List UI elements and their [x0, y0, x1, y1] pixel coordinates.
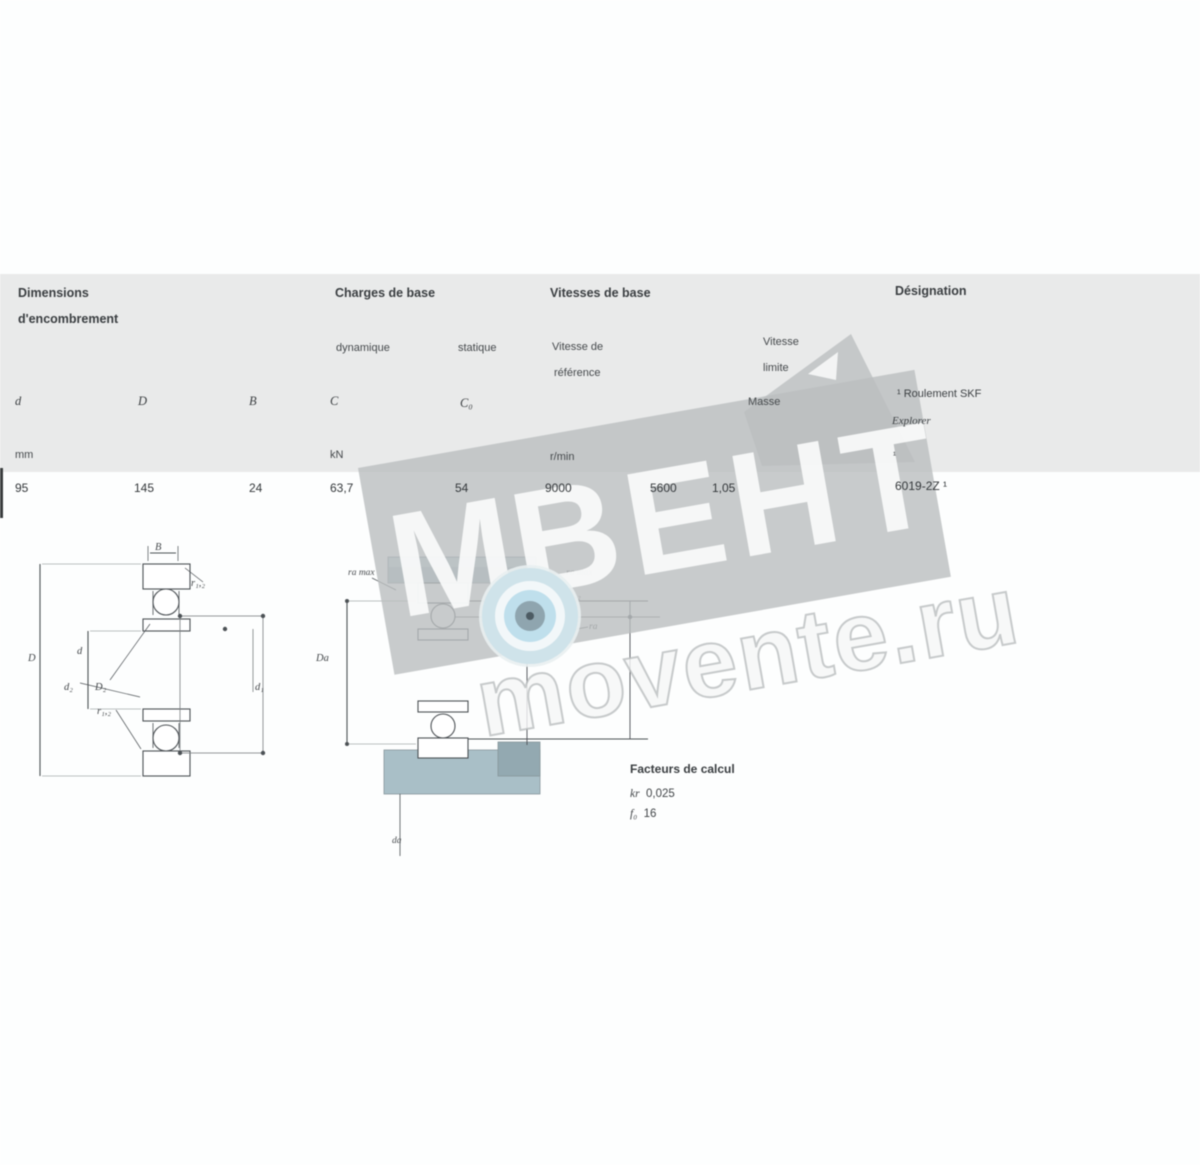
col-dimensions-title-line2: d'encombrement: [18, 312, 118, 326]
subheader-dynamic: dynamique: [336, 342, 390, 354]
value-static-load: 54: [455, 481, 468, 495]
unit-kN: kN: [330, 449, 343, 461]
col-dimensions-title-line1: Dimensions: [18, 286, 89, 300]
value-mass: 1,05: [712, 481, 735, 495]
watermark-logo-icon: [482, 568, 578, 664]
calc-factor-kr: kr 0,025: [630, 788, 675, 800]
calc-f0-value: 16: [644, 808, 657, 820]
calc-factor-f0: f₀ 16: [630, 808, 656, 820]
subheader-ref-speed-line2: référence: [554, 367, 600, 379]
symbol-bore-d: d: [15, 394, 21, 409]
footnote-mark: ¹: [893, 450, 896, 460]
catalog-page: Dimensions d'encombrement Charges de bas…: [0, 0, 1200, 1165]
value-width: 24: [249, 481, 262, 495]
unit-mm: mm: [15, 449, 33, 461]
symbol-dynamic-C: C: [330, 394, 338, 409]
subheader-static: statique: [458, 342, 497, 354]
calc-kr-symbol: kr: [630, 788, 640, 800]
logo-ring-blue: [504, 590, 556, 642]
value-bore: 95: [15, 481, 28, 495]
calc-f0-symbol: f₀: [630, 808, 637, 820]
col-designation-title: Désignation: [895, 284, 967, 298]
logo-ring-outer: [495, 581, 565, 651]
value-dynamic-load: 63,7: [330, 481, 353, 495]
value-designation: 6019-2Z ¹: [895, 479, 947, 493]
designation-note-line1: ¹ Roulement SKF: [897, 388, 981, 400]
symbol-static-C0: C₀: [460, 396, 473, 411]
value-ref-speed: 9000: [545, 481, 572, 495]
logo-center: [515, 601, 545, 631]
symbol-outer-D: D: [138, 394, 147, 409]
designation-note-line2: Explorer: [892, 415, 931, 427]
logo-center-dot: [526, 612, 534, 620]
unit-rmin: r/min: [550, 451, 574, 463]
calc-kr-value: 0,025: [646, 788, 675, 800]
subheader-mass: Masse: [748, 396, 780, 408]
value-outer: 145: [134, 481, 154, 495]
symbol-width-B: B: [249, 394, 257, 409]
subheader-ref-speed-line1: Vitesse de: [552, 341, 603, 353]
col-speeds-title: Vitesses de base: [550, 286, 651, 300]
calc-factors-heading: Facteurs de calcul: [630, 762, 735, 776]
subheader-lim-speed-line1: Vitesse: [763, 336, 799, 348]
left-edge-mark: [0, 468, 3, 518]
value-lim-speed: 5600: [650, 481, 677, 495]
subheader-lim-speed-line2: limite: [763, 362, 789, 374]
col-loads-title: Charges de base: [335, 286, 435, 300]
